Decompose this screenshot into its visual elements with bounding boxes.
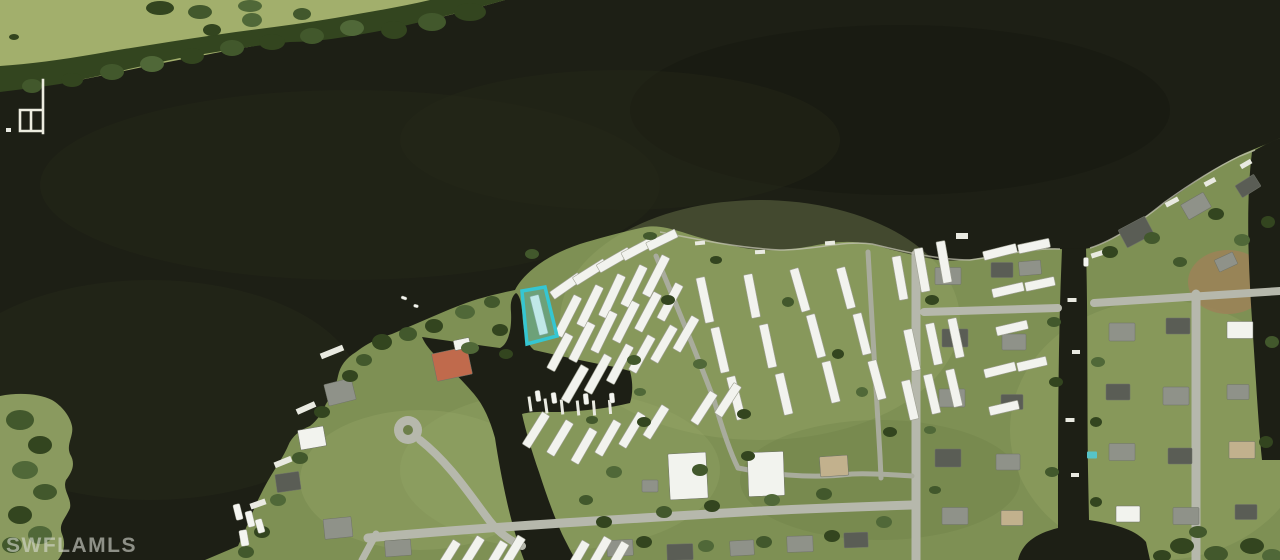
house bbox=[1227, 322, 1253, 339]
tree bbox=[525, 249, 539, 259]
house bbox=[668, 452, 708, 500]
tree bbox=[1234, 234, 1250, 246]
tree bbox=[1265, 336, 1279, 348]
tree bbox=[661, 295, 675, 305]
tree bbox=[188, 5, 212, 19]
tree bbox=[8, 506, 32, 524]
tree bbox=[1102, 246, 1118, 258]
tree bbox=[1208, 208, 1224, 220]
tree bbox=[710, 256, 722, 264]
tree bbox=[579, 495, 593, 505]
boat bbox=[609, 393, 615, 403]
house bbox=[642, 480, 658, 492]
tree bbox=[876, 516, 892, 528]
house bbox=[667, 544, 694, 560]
tree bbox=[22, 79, 42, 93]
swimming-pool bbox=[1087, 452, 1097, 459]
house bbox=[384, 539, 411, 557]
house bbox=[1018, 260, 1041, 276]
street-horizontal-a bbox=[924, 308, 1058, 312]
tree bbox=[1144, 232, 1160, 244]
tree bbox=[1090, 417, 1102, 427]
tree bbox=[372, 334, 392, 350]
tree bbox=[925, 295, 939, 305]
house bbox=[1001, 511, 1023, 526]
tree bbox=[180, 48, 204, 64]
tree bbox=[643, 232, 657, 240]
house bbox=[323, 517, 353, 540]
dock bbox=[1072, 350, 1080, 354]
tree bbox=[1259, 436, 1273, 448]
tree bbox=[292, 452, 308, 464]
tree bbox=[314, 406, 330, 418]
tree bbox=[146, 1, 174, 15]
house bbox=[1106, 384, 1130, 400]
tree bbox=[399, 327, 417, 341]
tree bbox=[238, 0, 262, 12]
house bbox=[787, 536, 814, 553]
tree bbox=[606, 466, 622, 478]
tree bbox=[741, 451, 755, 461]
tree bbox=[242, 13, 262, 27]
tree bbox=[656, 506, 672, 518]
tree bbox=[418, 13, 446, 31]
tree bbox=[293, 8, 311, 20]
tree bbox=[824, 530, 840, 542]
tree bbox=[634, 388, 646, 396]
tree bbox=[596, 516, 612, 528]
tree bbox=[342, 370, 358, 382]
house bbox=[1163, 387, 1189, 405]
dock bbox=[956, 233, 968, 239]
tree bbox=[1173, 257, 1187, 267]
house bbox=[1166, 318, 1190, 334]
tree bbox=[220, 40, 244, 56]
tree bbox=[12, 461, 38, 479]
tree bbox=[1049, 377, 1063, 387]
tree bbox=[356, 354, 372, 366]
house bbox=[844, 532, 869, 548]
tree bbox=[756, 536, 772, 548]
tree bbox=[203, 24, 221, 36]
tree bbox=[9, 34, 19, 40]
tree bbox=[636, 536, 652, 548]
tree bbox=[270, 494, 286, 506]
tree bbox=[1240, 538, 1264, 554]
house bbox=[1229, 442, 1255, 459]
tree bbox=[1091, 357, 1105, 367]
tree bbox=[816, 488, 832, 500]
tree bbox=[140, 56, 164, 72]
aerial-photo: SWFLAMLS bbox=[0, 0, 1280, 560]
tree bbox=[764, 494, 780, 506]
tree bbox=[1170, 538, 1194, 554]
house bbox=[730, 540, 755, 556]
house bbox=[1116, 506, 1140, 522]
tree bbox=[259, 34, 285, 50]
tree bbox=[28, 436, 52, 454]
house bbox=[942, 508, 968, 525]
tree bbox=[832, 349, 844, 359]
tree bbox=[782, 297, 794, 307]
tree bbox=[6, 410, 34, 430]
water-texture bbox=[400, 70, 840, 210]
boat bbox=[583, 393, 589, 404]
tree bbox=[455, 305, 475, 319]
tree bbox=[698, 540, 714, 552]
tree bbox=[586, 416, 598, 424]
house bbox=[297, 426, 326, 450]
tree bbox=[61, 73, 83, 87]
house bbox=[996, 454, 1020, 470]
tree bbox=[1090, 497, 1102, 507]
tree bbox=[381, 21, 407, 39]
tree bbox=[100, 64, 124, 80]
tree bbox=[924, 426, 936, 434]
house bbox=[935, 449, 961, 467]
cul-de-sac-island bbox=[403, 425, 413, 435]
house bbox=[275, 471, 301, 492]
watermark-text: SWFLAMLS bbox=[6, 534, 137, 557]
tree bbox=[704, 500, 720, 512]
tree bbox=[425, 319, 443, 333]
dock bbox=[1066, 418, 1075, 422]
tree bbox=[499, 349, 513, 359]
dock bbox=[755, 250, 765, 255]
tree bbox=[883, 427, 897, 437]
tree bbox=[693, 359, 707, 369]
boat bbox=[1084, 258, 1089, 267]
house bbox=[1109, 323, 1135, 341]
house bbox=[1227, 385, 1249, 400]
house bbox=[819, 455, 848, 477]
boat-speck bbox=[6, 128, 11, 132]
tree bbox=[238, 546, 254, 558]
tree bbox=[929, 486, 941, 494]
tree bbox=[340, 20, 364, 36]
house bbox=[1168, 448, 1192, 464]
tree bbox=[1261, 216, 1275, 228]
tree bbox=[1189, 526, 1207, 538]
tree bbox=[461, 342, 479, 354]
tree bbox=[484, 296, 500, 308]
tree bbox=[454, 3, 486, 21]
house bbox=[1109, 444, 1135, 461]
tree bbox=[1047, 317, 1061, 327]
tree bbox=[33, 484, 57, 500]
house bbox=[1235, 505, 1257, 520]
house bbox=[991, 263, 1013, 278]
dock bbox=[1068, 298, 1077, 302]
tree bbox=[637, 417, 651, 427]
dock bbox=[1071, 473, 1079, 477]
tree bbox=[856, 387, 868, 397]
tree bbox=[737, 409, 751, 419]
tree bbox=[1045, 467, 1059, 477]
tree bbox=[492, 324, 508, 336]
dock bbox=[825, 241, 835, 246]
tree bbox=[692, 464, 708, 476]
tree bbox=[300, 28, 324, 44]
pools-group bbox=[1087, 452, 1097, 459]
house bbox=[1173, 508, 1199, 525]
house bbox=[1002, 334, 1026, 350]
tree bbox=[627, 355, 641, 365]
